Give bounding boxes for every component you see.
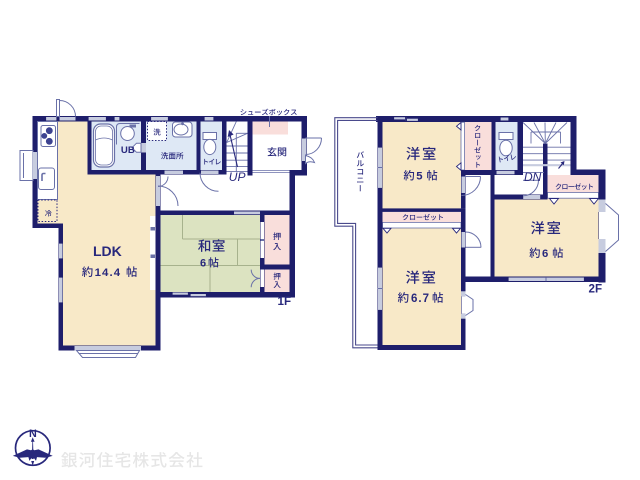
- svg-text:UP: UP: [229, 170, 246, 184]
- svg-text:6.7: 6.7: [411, 293, 430, 305]
- svg-text:2F: 2F: [589, 282, 603, 295]
- svg-text:LDK: LDK: [93, 243, 122, 259]
- svg-text:6: 6: [200, 258, 206, 270]
- svg-text:14.4: 14.4: [95, 267, 122, 279]
- svg-text:1F: 1F: [278, 295, 292, 308]
- svg-text:DN: DN: [524, 170, 542, 184]
- svg-text:5: 5: [416, 171, 422, 183]
- svg-text:6: 6: [542, 248, 548, 260]
- svg-text:UB: UB: [121, 145, 135, 156]
